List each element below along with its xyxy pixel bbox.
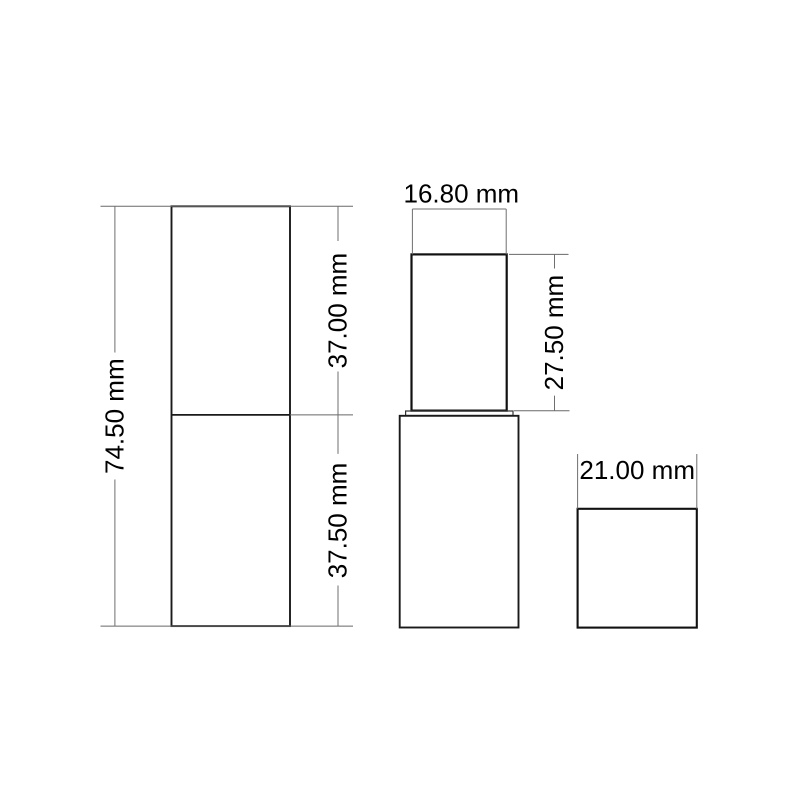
svg-text:27.50 mm: 27.50 mm — [539, 275, 569, 391]
svg-text:16.80 mm: 16.80 mm — [403, 179, 519, 209]
svg-text:21.00 mm: 21.00 mm — [579, 455, 695, 485]
svg-text:37.00 mm: 37.00 mm — [323, 253, 353, 369]
svg-text:74.50 mm: 74.50 mm — [100, 358, 130, 474]
svg-text:37.50 mm: 37.50 mm — [323, 463, 353, 579]
